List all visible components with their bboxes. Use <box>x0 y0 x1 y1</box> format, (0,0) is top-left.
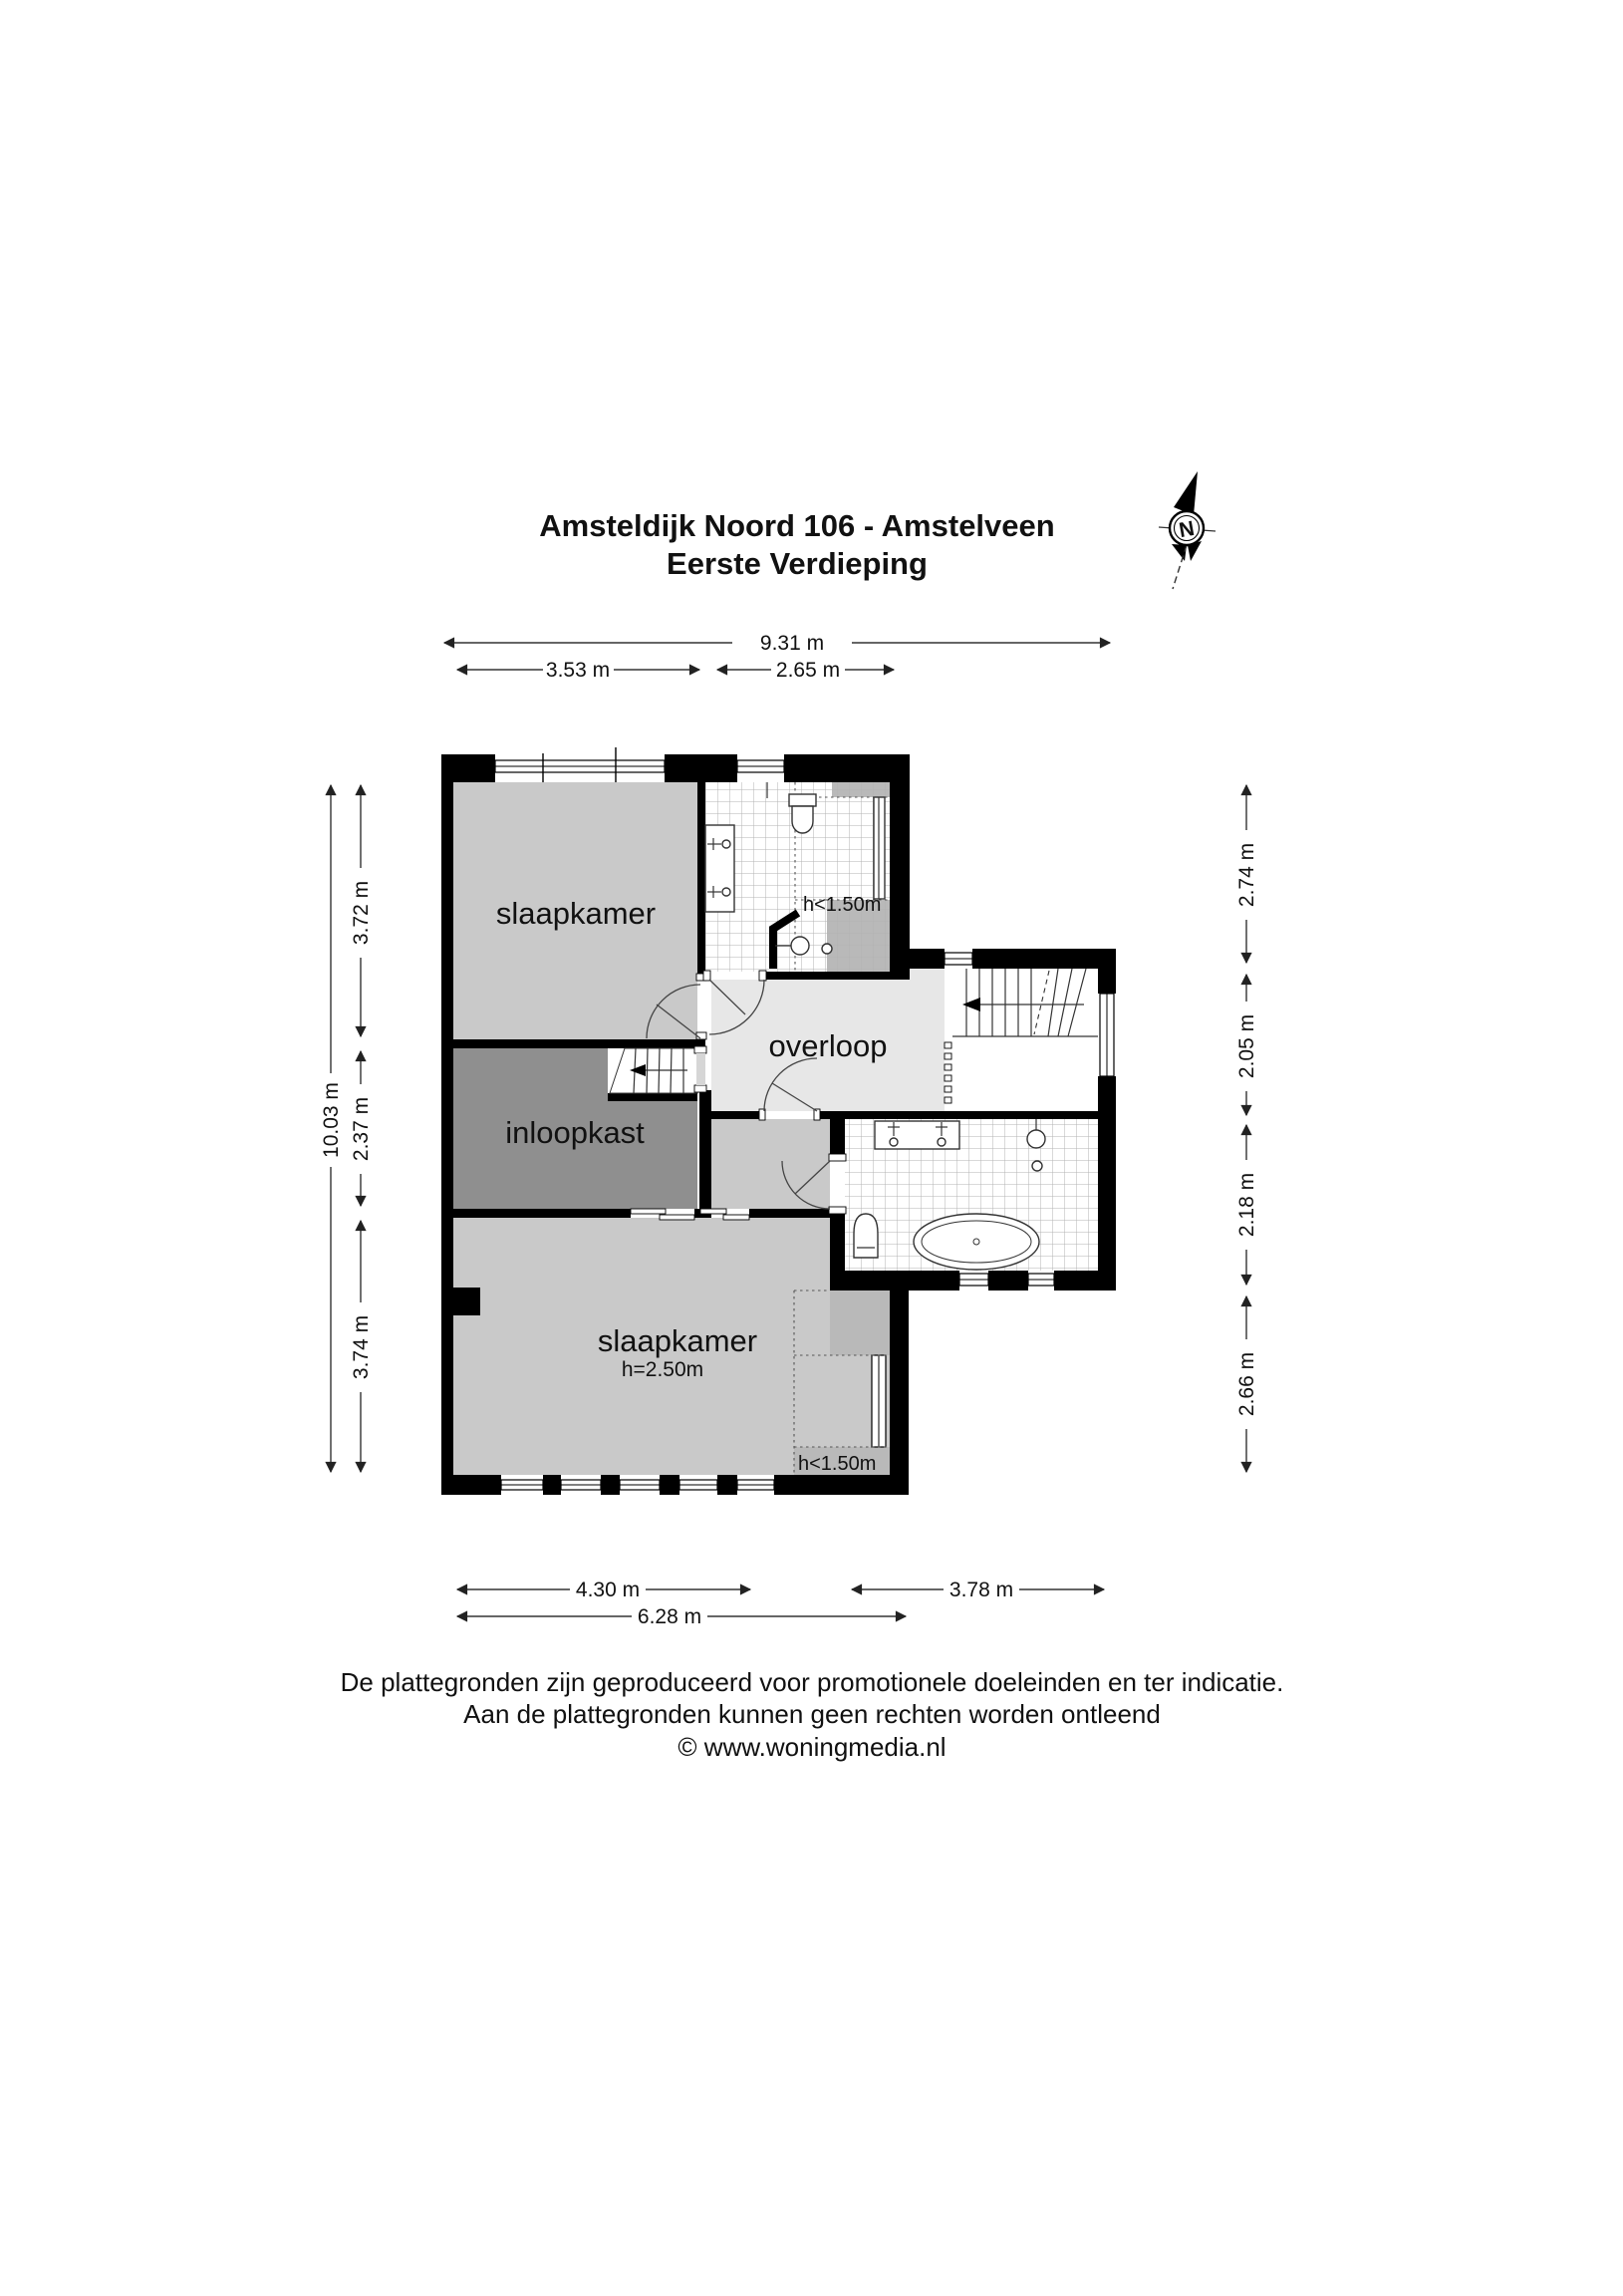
dim-bottom-left: 4.30 m <box>576 1578 640 1601</box>
bedroom-vestibule <box>711 1119 830 1209</box>
dim-top-left: 3.53 m <box>546 659 610 682</box>
title-line-2: Eerste Verdieping <box>667 546 928 581</box>
walk-in-closet-label: inloopkast <box>505 1115 645 1150</box>
bathtub-icon <box>914 1214 1039 1270</box>
vanity-double-sink <box>875 1121 959 1149</box>
bedroom-bottom-label: slaapkamer <box>598 1323 757 1358</box>
dim-left-middle: 2.37 m <box>350 1097 373 1161</box>
vanity-double-sink <box>705 825 734 912</box>
toilet-icon <box>854 1214 878 1258</box>
compass-north-icon: N <box>1159 471 1216 589</box>
dim-bottom-total: 6.28 m <box>638 1605 701 1628</box>
bedroom-bottom-low-ceiling-label: h<1.50m <box>798 1453 876 1475</box>
dim-top-total: 9.31 m <box>760 632 824 655</box>
dim-right-lower-middle: 2.18 m <box>1235 1173 1258 1237</box>
plan-title: Amsteldijk Noord 106 - Amstelveen Eerste… <box>539 508 1054 581</box>
dim-left-bottom: 3.74 m <box>350 1315 373 1379</box>
footer-line-1: De plattegronden zijn geproduceerd voor … <box>341 1667 1284 1697</box>
dim-left-total: 10.03 m <box>320 1082 343 1158</box>
dim-right-top: 2.74 m <box>1235 843 1258 907</box>
landing-label: overloop <box>769 1028 888 1063</box>
stair-doorway <box>696 1053 705 1085</box>
toilet-icon <box>789 794 816 833</box>
dim-right-upper-middle: 2.05 m <box>1235 1014 1258 1078</box>
bedroom-bottom-low-ceiling-zone-a <box>830 1291 890 1355</box>
dim-top-right: 2.65 m <box>776 659 840 682</box>
dim-left-top: 3.72 m <box>350 881 373 945</box>
bathroom-top-low-ceiling-label: h<1.50m <box>803 894 881 916</box>
stairwell-zone <box>945 969 1098 1111</box>
bedroom-top-label: slaapkamer <box>496 896 656 931</box>
floorplan-drawing: Amsteldijk Noord 106 - Amstelveen Eerste… <box>0 0 1623 2296</box>
radiator-icon <box>874 797 885 899</box>
dim-right-bottom: 2.66 m <box>1235 1352 1258 1416</box>
bedroom-bottom-ceiling-label: h=2.50m <box>622 1358 703 1381</box>
footer-line-3: © www.woningmedia.nl <box>677 1732 946 1762</box>
footer-line-2: Aan de plattegronden kunnen geen rechten… <box>463 1699 1161 1729</box>
floorplan-page: Amsteldijk Noord 106 - Amstelveen Eerste… <box>0 0 1623 2296</box>
dim-bottom-right: 3.78 m <box>949 1578 1013 1601</box>
title-line-1: Amsteldijk Noord 106 - Amstelveen <box>539 508 1054 543</box>
footer-disclaimer: De plattegronden zijn geproduceerd voor … <box>341 1667 1284 1762</box>
staircase-upper <box>610 1046 706 1093</box>
